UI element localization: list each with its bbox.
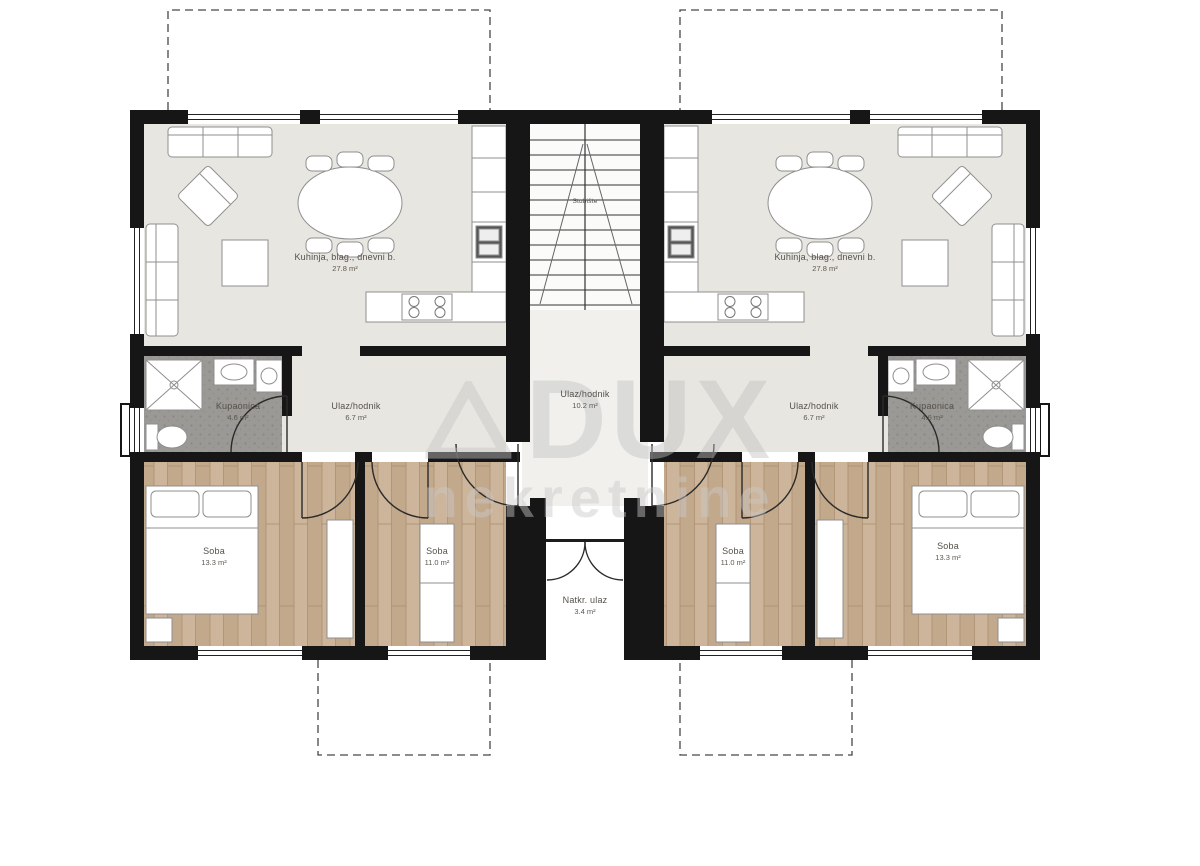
room-label-bathroom-left: Kupaonica 4.6 m² [216, 401, 260, 423]
entrance-door-threshold [546, 539, 624, 542]
toilet [157, 426, 187, 448]
room-name: Ulaz/hodnik [789, 401, 838, 412]
nightstand [146, 618, 172, 642]
apartment-unit-right [640, 10, 1049, 755]
room-label-hall-left: Ulaz/hodnik 6.7 m² [331, 401, 380, 423]
corridor-wall-right [624, 498, 640, 660]
room-area: 27.8 m² [774, 264, 875, 273]
sofa-2 [146, 224, 178, 336]
room-label-covered-entrance: Natkr. ulaz 3.4 m² [563, 595, 608, 617]
room-label-living-right: Kuhinja, blag., dnevni b. 27.8 m² [774, 252, 875, 274]
room-label-bathroom-right: Kupaonica 4.6 m² [910, 401, 954, 423]
room-area: 6.7 m² [789, 413, 838, 422]
chair [368, 238, 394, 253]
pillow [203, 491, 251, 517]
chair [337, 152, 363, 167]
stove [402, 294, 452, 320]
room-area: 11.0 m² [721, 558, 746, 567]
room-name: Kupaonica [910, 401, 954, 412]
pillow [151, 491, 199, 517]
room-area: 13.3 m² [935, 553, 960, 562]
washing-machine [256, 360, 282, 392]
room-area: 6.7 m² [331, 413, 380, 422]
room-name: Soba [721, 546, 746, 557]
room-name: Soba [425, 546, 450, 557]
room-name: Soba [201, 546, 226, 557]
apartment-unit-left [121, 10, 530, 755]
room-name: Kupaonica [216, 401, 260, 412]
room-label-entry-hall: Ulaz/hodnik 10.2 m² [560, 389, 609, 411]
room-name: Stubište [572, 198, 597, 206]
room-label-bedroom-small-right: Soba 11.0 m² [721, 546, 746, 568]
washbasin [214, 359, 254, 385]
floor-plan-image: DUX nekretnine Kuhinja, blag., dnevni b.… [0, 0, 1200, 866]
room-area: 13.3 m² [201, 558, 226, 567]
room-area: 4.6 m² [910, 413, 954, 422]
chair [306, 238, 332, 253]
room-label-bedroom-small-left: Soba 11.0 m² [425, 546, 450, 568]
room-label-living-left: Kuhinja, blag., dnevni b. 27.8 m² [294, 252, 395, 274]
room-area: 27.8 m² [294, 264, 395, 273]
room-label-staircase: Stubište [572, 198, 597, 206]
central-core [522, 110, 648, 660]
core-top-wall [522, 110, 648, 124]
coffee-table [222, 240, 268, 286]
room-area: 11.0 m² [425, 558, 450, 567]
room-name: Natkr. ulaz [563, 595, 608, 606]
kitchen-counter [472, 126, 506, 320]
chair [306, 156, 332, 171]
room-name: Kuhinja, blag., dnevni b. [774, 252, 875, 263]
room-area: 4.6 m² [216, 413, 260, 422]
sofa [168, 127, 272, 157]
room-label-bedroom-large-right: Soba 13.3 m² [935, 541, 960, 563]
chair [368, 156, 394, 171]
floor-plan-drawing [0, 0, 1200, 866]
room-name: Ulaz/hodnik [560, 389, 609, 400]
room-label-hall-right: Ulaz/hodnik 6.7 m² [789, 401, 838, 423]
room-area: 3.4 m² [563, 607, 608, 616]
room-name: Kuhinja, blag., dnevni b. [294, 252, 395, 263]
dining-table [298, 167, 402, 239]
wardrobe [327, 520, 353, 638]
room-name: Soba [935, 541, 960, 552]
toilet-tank [146, 424, 158, 450]
covered-entrance-floor [546, 506, 624, 660]
room-label-bedroom-large-left: Soba 13.3 m² [201, 546, 226, 568]
room-name: Ulaz/hodnik [331, 401, 380, 412]
room-area: 10.2 m² [560, 401, 609, 410]
corridor-wall-left [530, 498, 546, 660]
